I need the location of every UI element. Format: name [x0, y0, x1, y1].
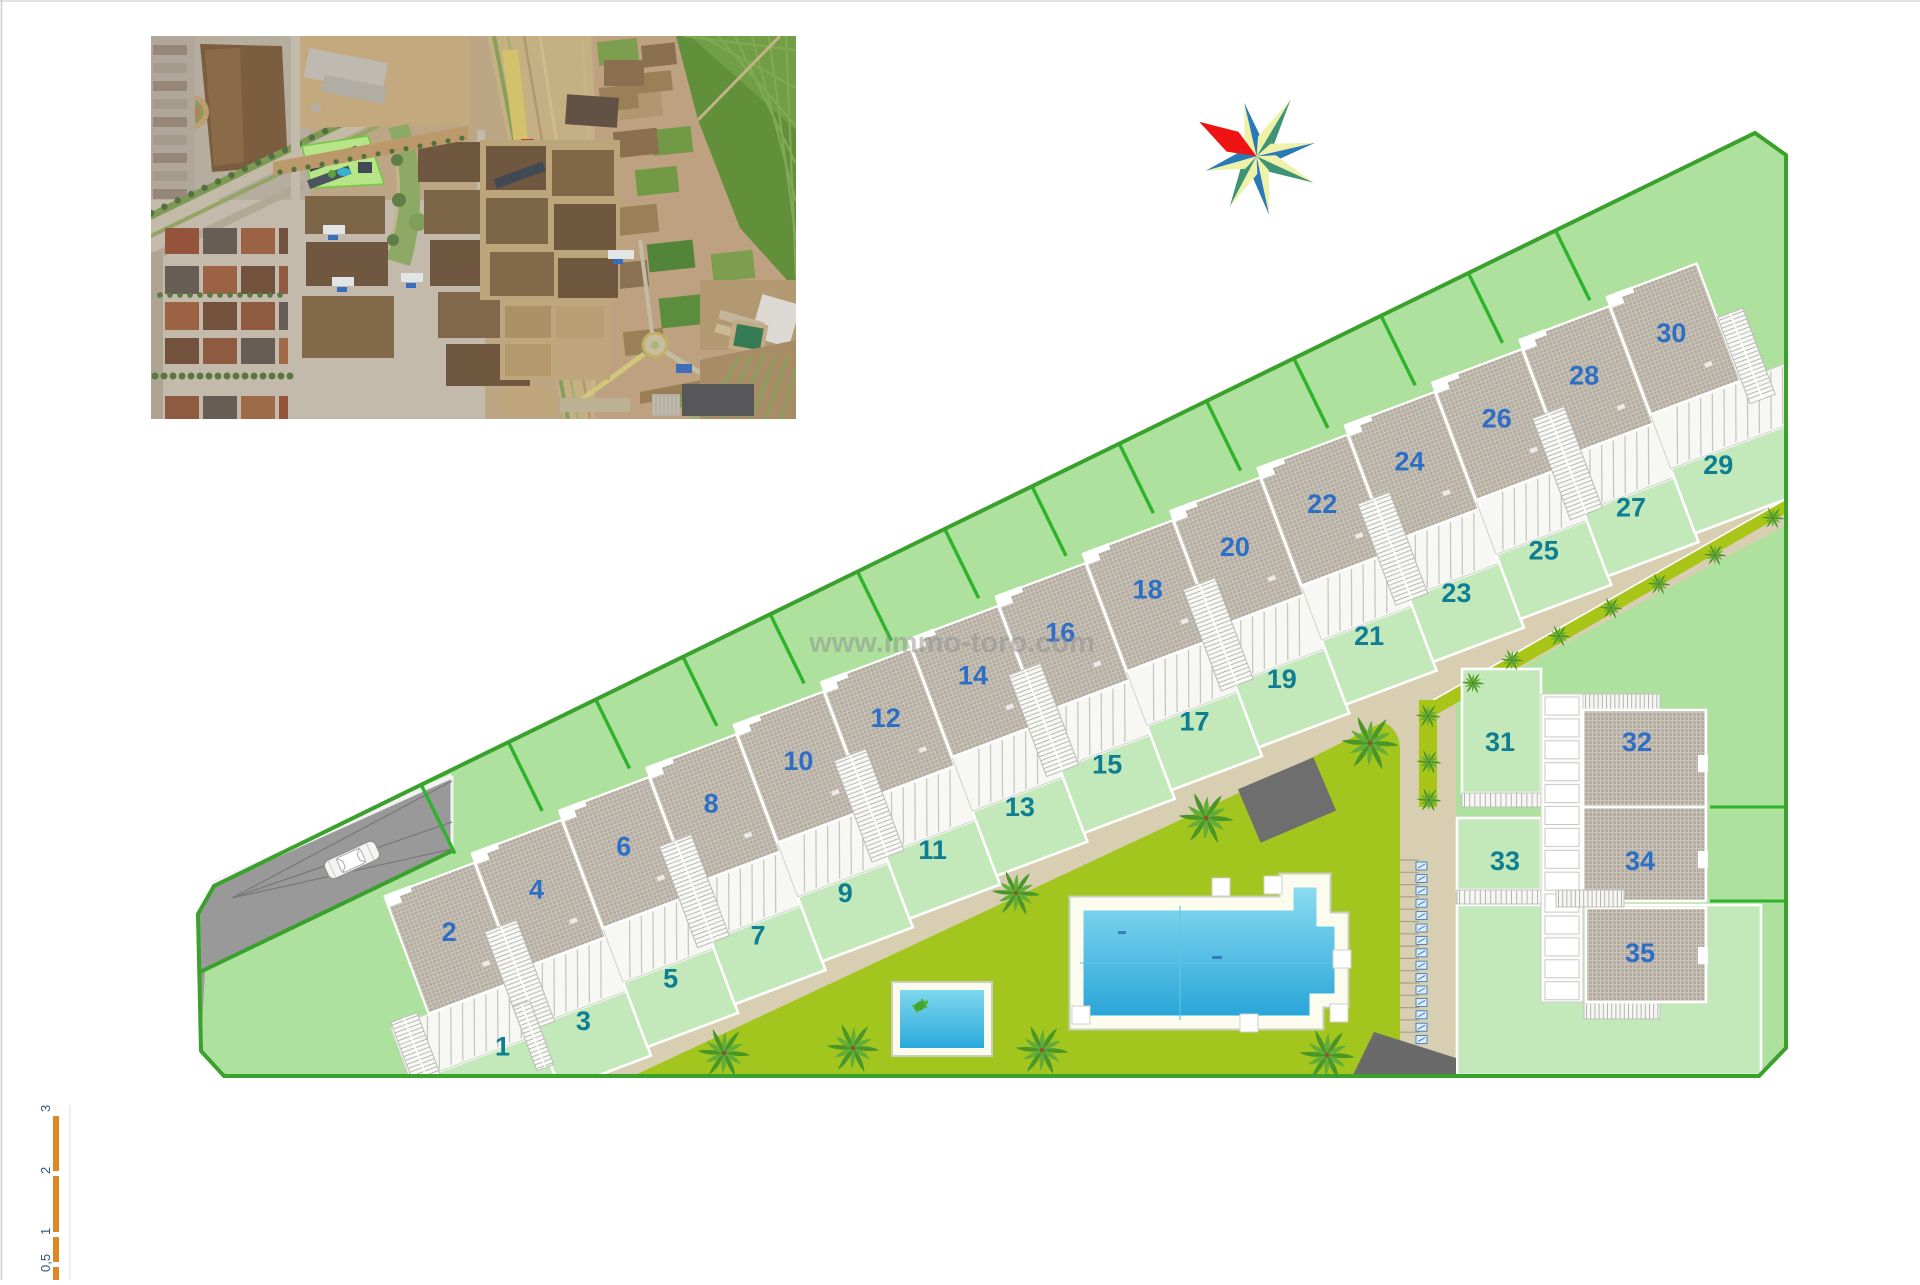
svg-text:7: 7 — [750, 921, 765, 951]
svg-text:35: 35 — [1625, 938, 1655, 968]
svg-text:30: 30 — [1656, 318, 1686, 348]
svg-text:11: 11 — [918, 835, 947, 865]
svg-text:19: 19 — [1267, 664, 1297, 694]
svg-text:5: 5 — [663, 963, 678, 993]
svg-text:31: 31 — [1485, 727, 1515, 757]
svg-text:20: 20 — [1220, 532, 1250, 562]
svg-text:21: 21 — [1354, 621, 1384, 651]
svg-text:6: 6 — [616, 832, 631, 862]
svg-text:3: 3 — [576, 1006, 591, 1036]
svg-text:15: 15 — [1092, 749, 1122, 779]
svg-text:32: 32 — [1622, 727, 1652, 757]
svg-text:29: 29 — [1703, 450, 1733, 480]
svg-text:18: 18 — [1133, 575, 1163, 605]
svg-text:2: 2 — [442, 917, 457, 947]
svg-text:24: 24 — [1394, 446, 1424, 476]
svg-text:17: 17 — [1179, 707, 1209, 737]
svg-text:14: 14 — [958, 660, 988, 690]
svg-text:0,5: 0,5 — [38, 1254, 53, 1272]
svg-text:34: 34 — [1625, 846, 1655, 876]
svg-text:3: 3 — [38, 1105, 53, 1112]
svg-text:9: 9 — [838, 878, 853, 908]
svg-text:22: 22 — [1307, 489, 1337, 519]
svg-text:10: 10 — [783, 746, 813, 776]
svg-text:8: 8 — [704, 789, 719, 819]
svg-text:1: 1 — [38, 1228, 53, 1235]
svg-text:2: 2 — [38, 1167, 53, 1174]
svg-text:4: 4 — [529, 874, 544, 904]
svg-text:25: 25 — [1529, 535, 1559, 565]
svg-text:27: 27 — [1616, 493, 1646, 523]
svg-text:www.immo-toro.com: www.immo-toro.com — [808, 627, 1095, 659]
svg-text:23: 23 — [1441, 578, 1471, 608]
svg-text:28: 28 — [1569, 361, 1599, 391]
svg-text:1: 1 — [495, 1032, 510, 1062]
svg-text:13: 13 — [1005, 792, 1035, 822]
svg-text:26: 26 — [1482, 404, 1512, 434]
svg-text:33: 33 — [1490, 846, 1520, 876]
svg-text:12: 12 — [871, 703, 901, 733]
